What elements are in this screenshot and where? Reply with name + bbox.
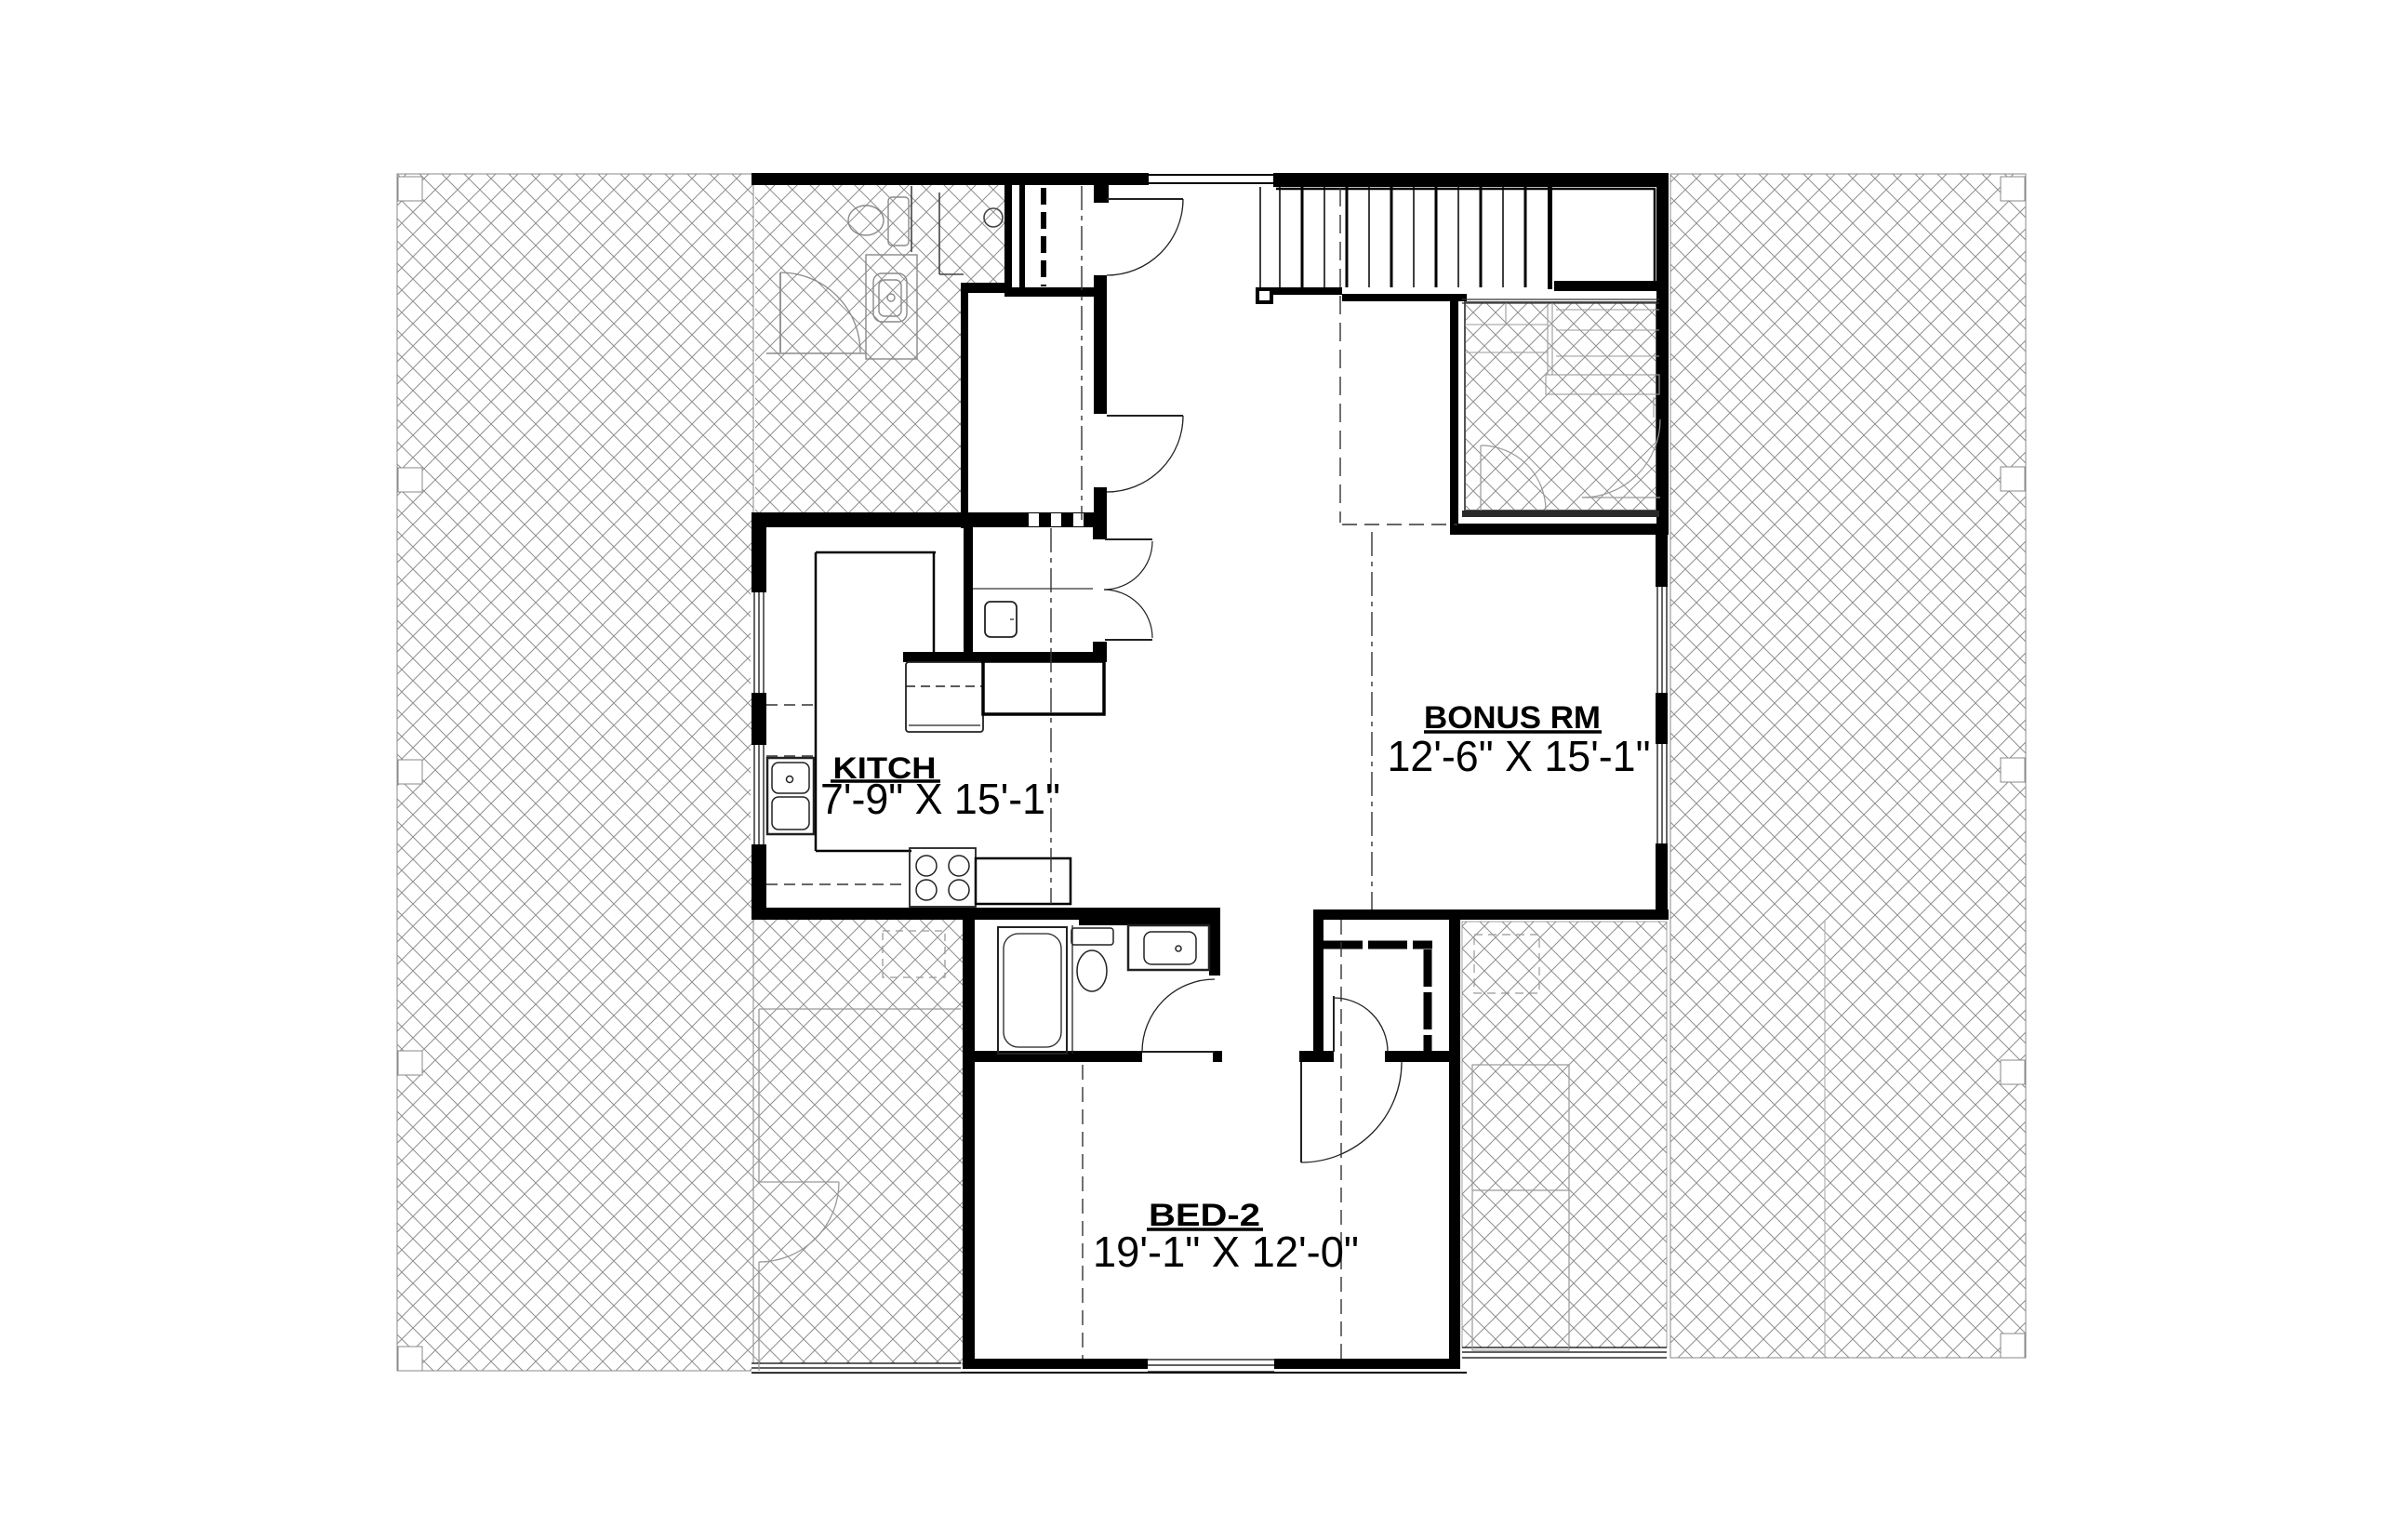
svg-text:12'-6" X 15'-1": 12'-6" X 15'-1" [1388, 732, 1651, 780]
svg-text:19'-1" X 12'-0": 19'-1" X 12'-0" [1093, 1228, 1359, 1276]
svg-text:7'-9" X 15'-1": 7'-9" X 15'-1" [820, 775, 1060, 823]
